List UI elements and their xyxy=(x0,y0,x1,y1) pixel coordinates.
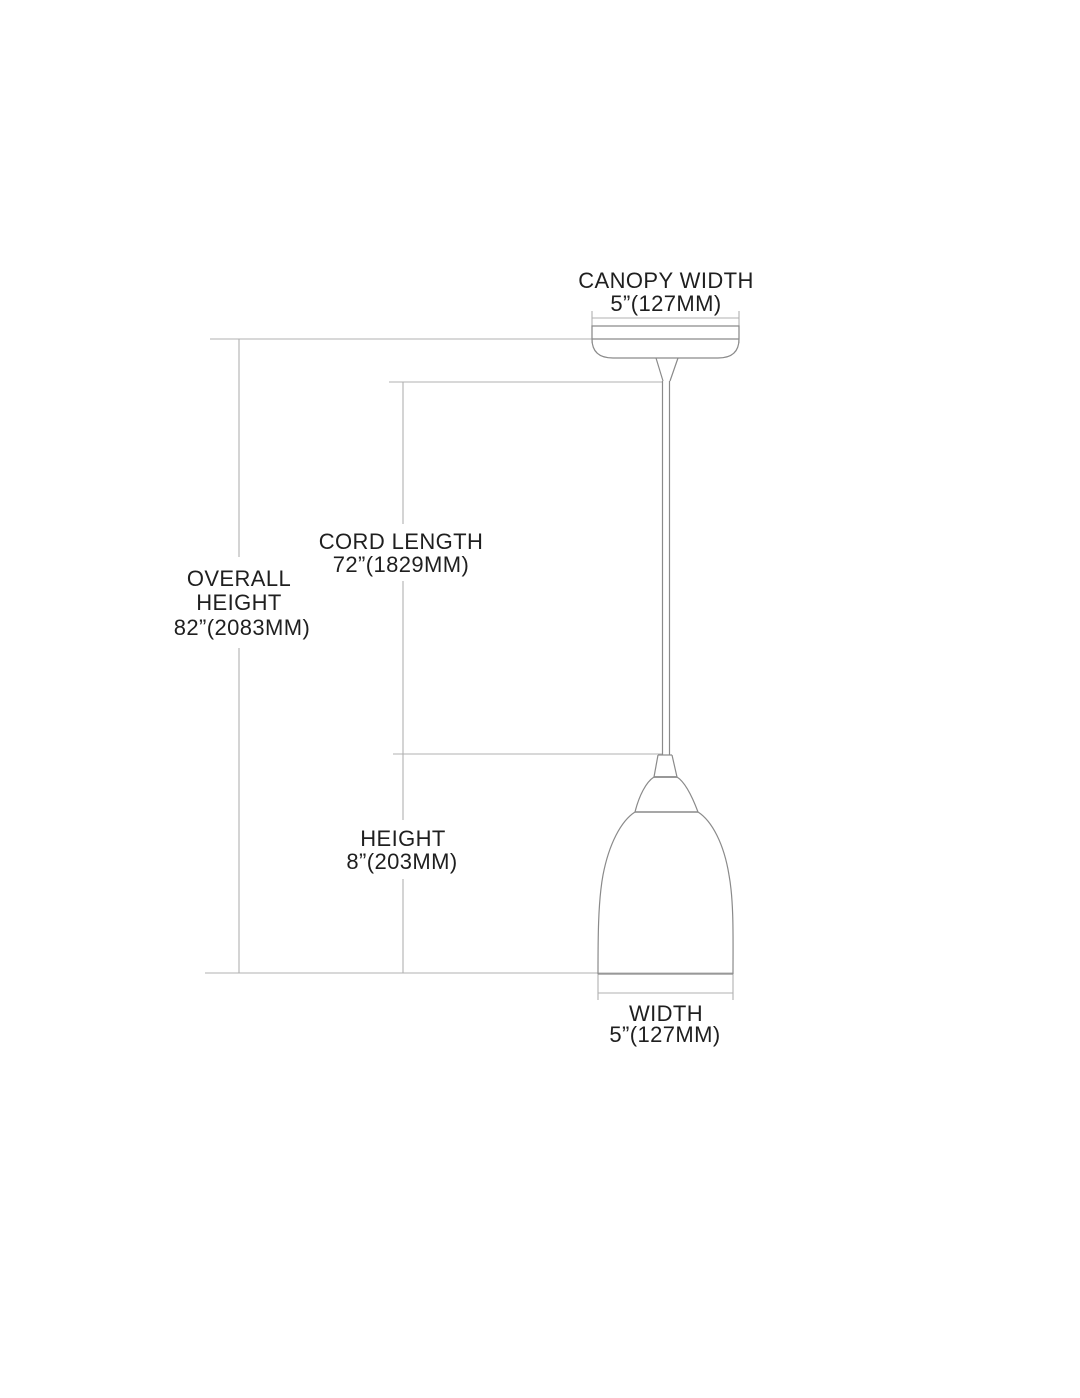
canopy-width-value: 5”(127MM) xyxy=(610,291,721,316)
diagram-canvas: CANOPY WIDTH 5”(127MM) OVERALL HEIGHT 82… xyxy=(0,0,1080,1398)
dimension-lines xyxy=(205,311,739,1000)
canopy-outline xyxy=(592,326,739,358)
cord-length-label: CORD LENGTH xyxy=(319,529,484,554)
shade-neck-right xyxy=(677,777,698,812)
canopy-width-label: CANOPY WIDTH xyxy=(578,268,754,293)
socket-right-line xyxy=(672,755,677,777)
overall-height-value: 82”(2083MM) xyxy=(174,615,310,640)
stem-right-line xyxy=(670,358,678,381)
width-value: 5”(127MM) xyxy=(609,1022,720,1047)
stem-left-line xyxy=(656,358,663,381)
height-label: HEIGHT xyxy=(360,826,446,851)
dimension-labels: CANOPY WIDTH 5”(127MM) OVERALL HEIGHT 82… xyxy=(174,268,754,1047)
cord-length-value: 72”(1829MM) xyxy=(333,552,469,577)
fixture-outline xyxy=(592,326,739,974)
height-value: 8”(203MM) xyxy=(346,849,457,874)
overall-height-label-line2: HEIGHT xyxy=(196,590,282,615)
overall-height-label-line1: OVERALL xyxy=(187,566,291,591)
shade-neck-left xyxy=(635,777,654,812)
pendant-dimension-diagram: CANOPY WIDTH 5”(127MM) OVERALL HEIGHT 82… xyxy=(0,0,1080,1398)
socket-left-line xyxy=(654,755,658,777)
shade-bell-right xyxy=(698,812,733,974)
shade-bell-left xyxy=(598,812,635,974)
